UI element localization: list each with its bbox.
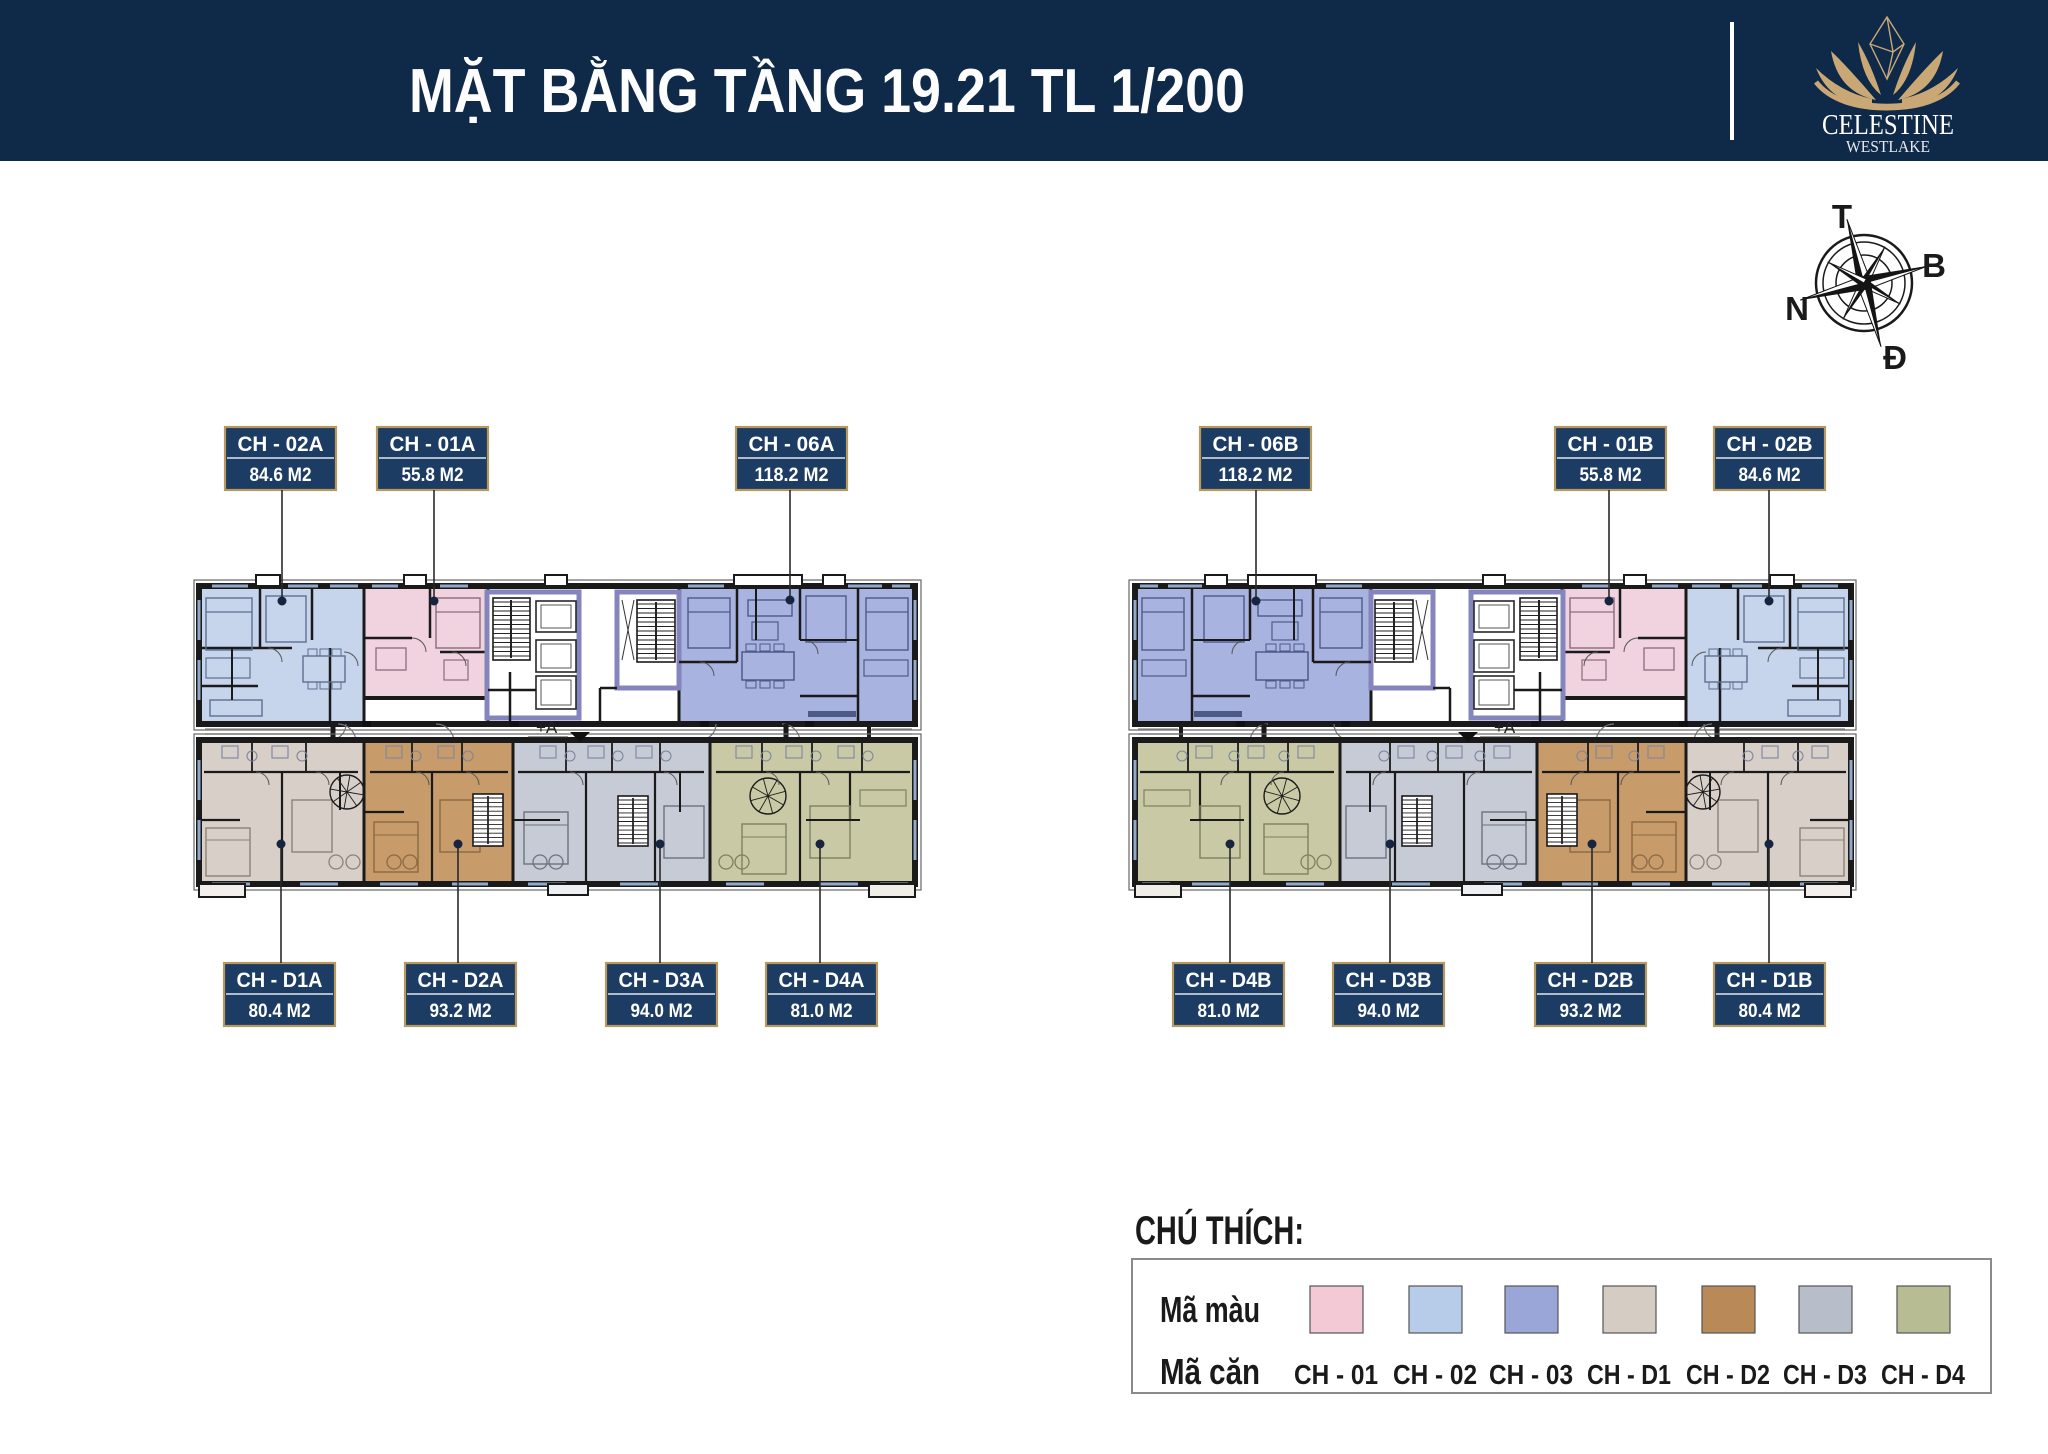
- svg-text:CH - D1A: CH - D1A: [237, 969, 323, 992]
- svg-text:CH - D4A: CH - D4A: [779, 969, 865, 992]
- svg-text:CH - 03: CH - 03: [1489, 1359, 1573, 1390]
- svg-text:94.0 M2: 94.0 M2: [631, 1001, 693, 1022]
- svg-text:+A: +A: [1494, 718, 1516, 737]
- svg-text:84.6 M2: 84.6 M2: [250, 465, 312, 486]
- svg-text:81.0 M2: 81.0 M2: [791, 1001, 853, 1022]
- svg-text:CH - D4B: CH - D4B: [1186, 969, 1272, 992]
- svg-text:55.8 M2: 55.8 M2: [402, 465, 464, 486]
- svg-text:93.2 M2: 93.2 M2: [1560, 1001, 1622, 1022]
- svg-text:WESTLAKE: WESTLAKE: [1846, 137, 1930, 156]
- svg-text:+A: +A: [536, 718, 558, 737]
- svg-text:CH - D1: CH - D1: [1587, 1359, 1671, 1390]
- svg-text:CH - 01: CH - 01: [1294, 1359, 1378, 1390]
- svg-text:55.8 M2: 55.8 M2: [1580, 465, 1642, 486]
- svg-text:94.0 M2: 94.0 M2: [1358, 1001, 1420, 1022]
- svg-text:MẶT BẰNG TẦNG 19.21 TL 1/200: MẶT BẰNG TẦNG 19.21 TL 1/200: [409, 57, 1245, 126]
- svg-text:CH - D2: CH - D2: [1686, 1359, 1770, 1390]
- svg-text:CH - D3B: CH - D3B: [1346, 969, 1432, 992]
- svg-text:CH - 02B: CH - 02B: [1727, 433, 1813, 456]
- svg-text:CH - D2B: CH - D2B: [1548, 969, 1634, 992]
- svg-text:CH - D3A: CH - D3A: [619, 969, 705, 992]
- svg-text:Mã màu: Mã màu: [1160, 1289, 1260, 1330]
- svg-text:CH - 06A: CH - 06A: [749, 433, 835, 456]
- svg-text:CH - 01A: CH - 01A: [390, 433, 476, 456]
- svg-text:CH - D1B: CH - D1B: [1727, 969, 1813, 992]
- svg-text:93.2 M2: 93.2 M2: [430, 1001, 492, 1022]
- svg-text:N: N: [1785, 290, 1809, 327]
- svg-text:Mã căn: Mã căn: [1160, 1351, 1260, 1392]
- svg-text:CH - D2A: CH - D2A: [418, 969, 504, 992]
- svg-text:Đ: Đ: [1883, 339, 1907, 376]
- svg-text:CH - 06B: CH - 06B: [1213, 433, 1299, 456]
- svg-text:118.2 M2: 118.2 M2: [1219, 465, 1293, 486]
- svg-text:B: B: [1922, 247, 1946, 284]
- svg-text:CH - 02: CH - 02: [1393, 1359, 1477, 1390]
- svg-text:T: T: [1832, 198, 1852, 235]
- svg-text:CH - 01B: CH - 01B: [1568, 433, 1654, 456]
- svg-text:80.4 M2: 80.4 M2: [249, 1001, 311, 1022]
- svg-text:118.2 M2: 118.2 M2: [755, 465, 829, 486]
- svg-text:84.6 M2: 84.6 M2: [1739, 465, 1801, 486]
- svg-text:81.0 M2: 81.0 M2: [1198, 1001, 1260, 1022]
- svg-text:CH - D3: CH - D3: [1783, 1359, 1867, 1390]
- svg-text:80.4 M2: 80.4 M2: [1739, 1001, 1801, 1022]
- svg-text:CH - D4: CH - D4: [1881, 1359, 1965, 1390]
- svg-text:CHÚ THÍCH:: CHÚ THÍCH:: [1135, 1207, 1304, 1253]
- svg-text:CH - 02A: CH - 02A: [238, 433, 324, 456]
